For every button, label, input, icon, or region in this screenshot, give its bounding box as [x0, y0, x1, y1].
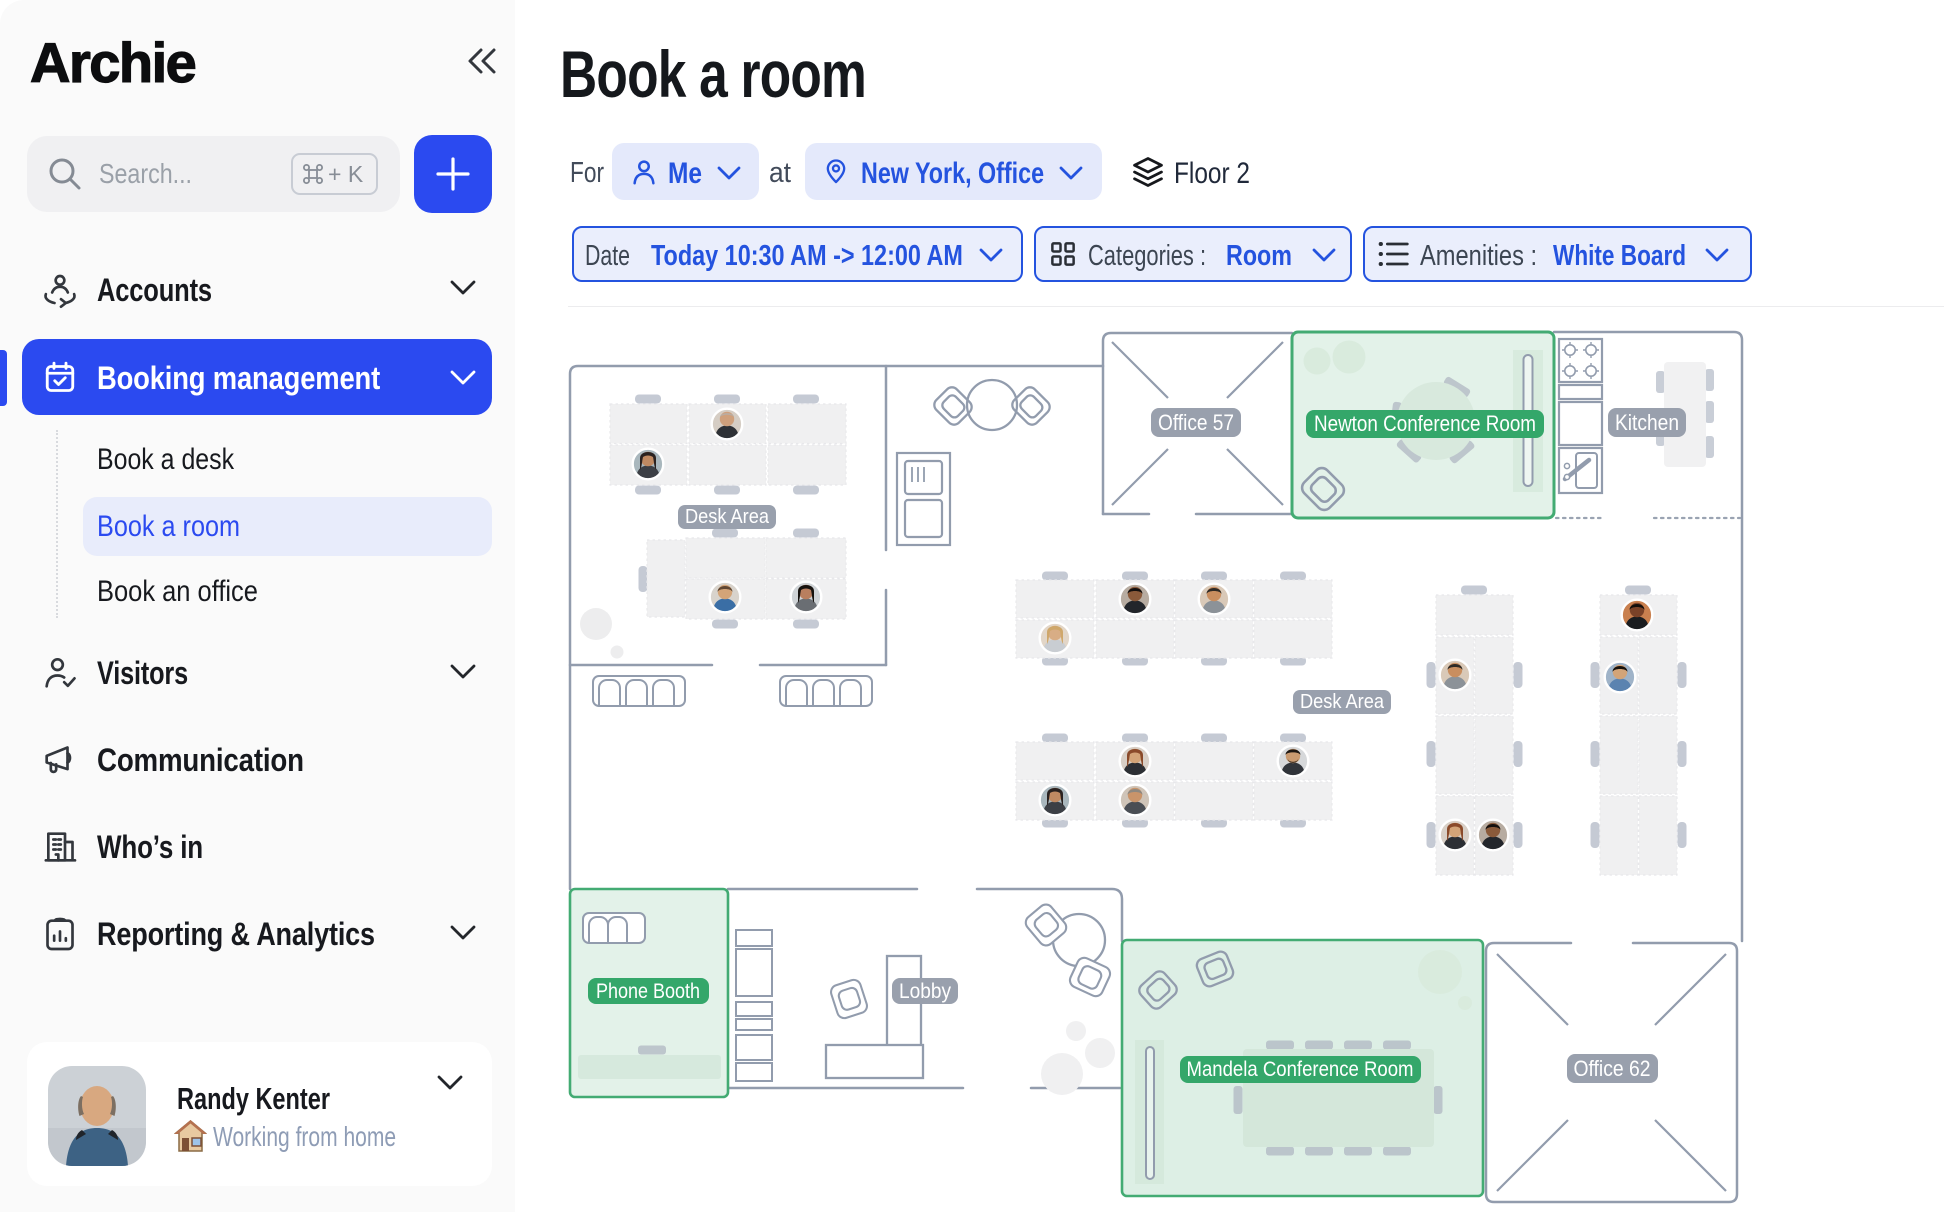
svg-text:Newton Conference Room: Newton Conference Room — [1314, 411, 1536, 436]
svg-text:Mandela Conference Room: Mandela Conference Room — [1187, 1058, 1414, 1081]
svg-text:Desk Area: Desk Area — [1300, 691, 1385, 713]
svg-text:Phone Booth: Phone Booth — [596, 980, 700, 1003]
svg-text:Desk Area: Desk Area — [685, 506, 770, 528]
svg-text:Lobby: Lobby — [899, 980, 951, 1003]
svg-text:Office 62: Office 62 — [1574, 1056, 1651, 1081]
svg-text:Office 57: Office 57 — [1158, 410, 1234, 435]
svg-text:Kitchen: Kitchen — [1615, 410, 1679, 435]
